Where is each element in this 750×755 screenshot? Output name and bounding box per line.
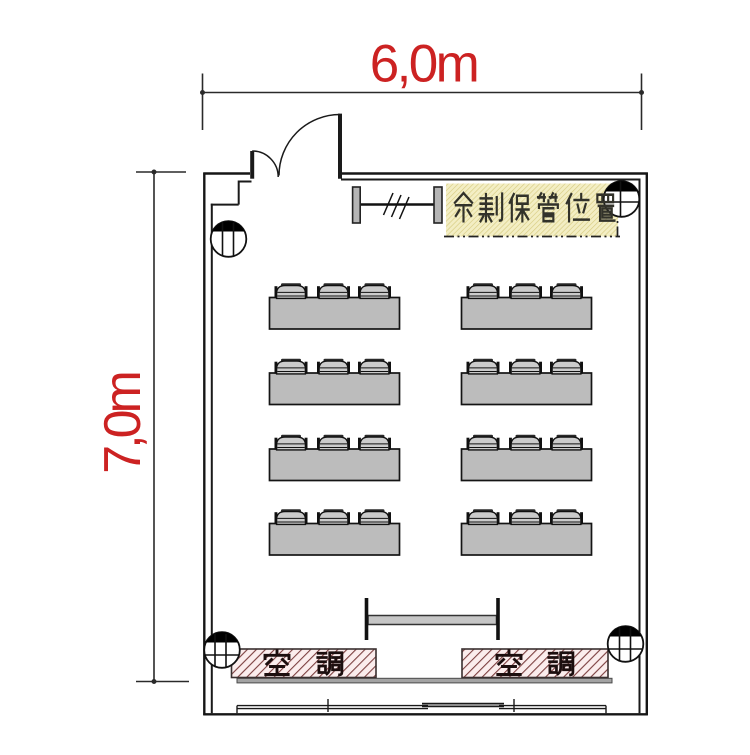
svg-text:6,0m: 6,0m xyxy=(370,35,477,94)
svg-text:7,0m: 7,0m xyxy=(94,374,152,474)
